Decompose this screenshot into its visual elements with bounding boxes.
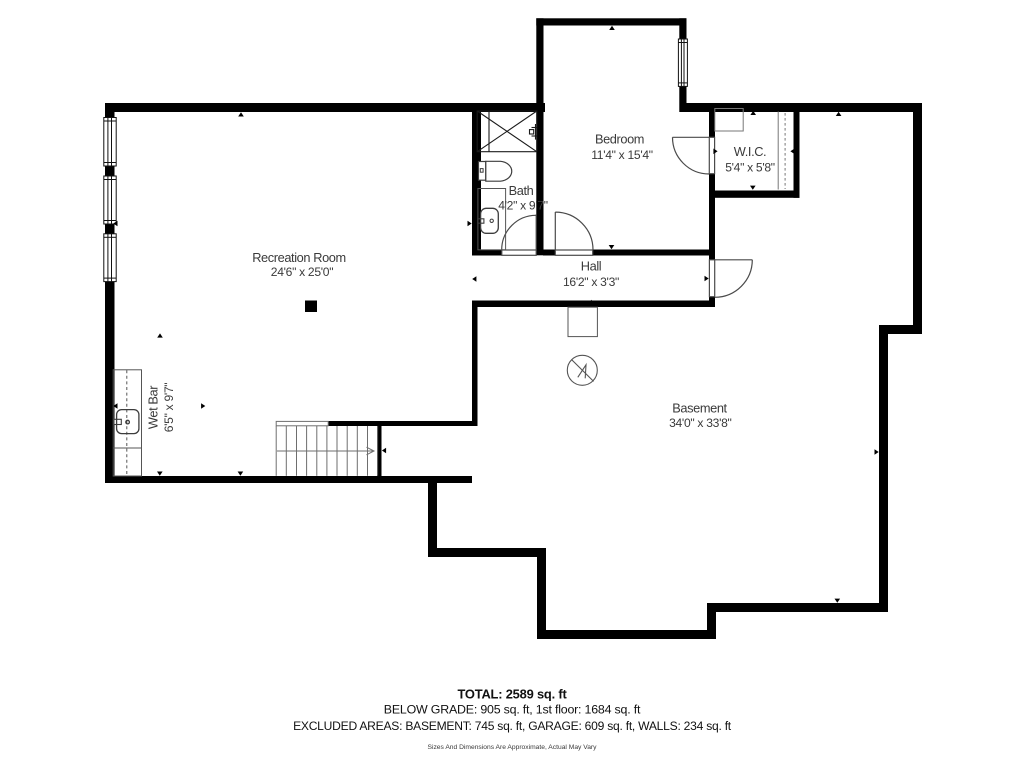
svg-text:6'5" x 9'7": 6'5" x 9'7" (162, 383, 176, 433)
svg-text:11'4" x 15'4": 11'4" x 15'4" (591, 148, 653, 162)
svg-text:Sizes And Dimensions Are Appro: Sizes And Dimensions Are Approximate, Ac… (428, 744, 598, 751)
svg-text:34'0" x 33'8": 34'0" x 33'8" (669, 416, 731, 430)
svg-text:4'2" x 9'7": 4'2" x 9'7" (498, 198, 548, 212)
svg-text:Recreation Room: Recreation Room (252, 250, 346, 265)
svg-text:Basement: Basement (672, 400, 727, 415)
svg-text:16'2" x 3'3": 16'2" x 3'3" (563, 275, 619, 289)
svg-text:5'4" x 5'8": 5'4" x 5'8" (725, 161, 775, 175)
svg-text:TOTAL: 2589 sq. ft: TOTAL: 2589 sq. ft (457, 686, 567, 701)
svg-text:24'6" x 25'0": 24'6" x 25'0" (271, 265, 333, 279)
svg-text:Wet Bar: Wet Bar (146, 385, 161, 429)
svg-text:BELOW GRADE: 905 sq. ft, 1st f: BELOW GRADE: 905 sq. ft, 1st floor: 1684… (384, 702, 641, 716)
svg-text:Hall: Hall (581, 258, 601, 273)
svg-text:EXCLUDED AREAS: BASEMENT: 745: EXCLUDED AREAS: BASEMENT: 745 sq. ft, GA… (293, 719, 732, 733)
svg-text:W.I.C.: W.I.C. (734, 144, 766, 159)
svg-text:Bath: Bath (509, 183, 534, 198)
svg-text:Bedroom: Bedroom (595, 132, 644, 147)
